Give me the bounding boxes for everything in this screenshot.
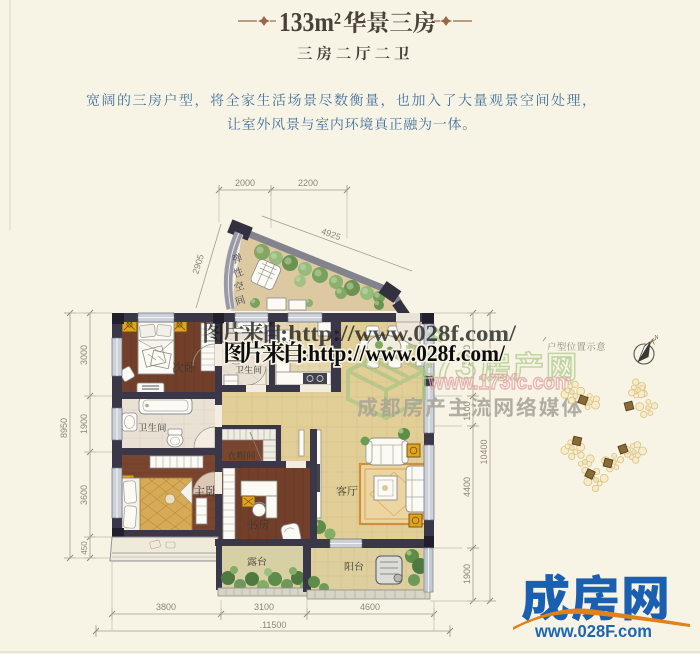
svg-text:10400: 10400 <box>479 439 489 464</box>
svg-text:3800: 3800 <box>156 602 176 612</box>
svg-text:1900: 1900 <box>462 564 472 584</box>
svg-text:3000: 3000 <box>79 345 89 365</box>
svg-text:3100: 3100 <box>254 602 274 612</box>
svg-text:1900: 1900 <box>79 414 89 434</box>
svg-text:.11500: .11500 <box>260 620 287 630</box>
svg-text:N: N <box>655 335 659 341</box>
svg-text:4600: 4600 <box>360 602 380 612</box>
svg-text:www.173fc.com: www.173fc.com <box>428 370 572 394</box>
svg-text:8950: 8950 <box>59 418 69 438</box>
svg-text:2000: 2000 <box>235 178 255 188</box>
svg-text:450: 450 <box>80 541 89 555</box>
svg-text:1100: 1100 <box>462 401 472 420</box>
svg-text::http://www.028f.com/: :http://www.028f.com/ <box>301 341 505 367</box>
svg-text:2200: 2200 <box>298 178 318 188</box>
svg-text:3600: 3600 <box>79 485 89 505</box>
svg-text:www.028F.com: www.028F.com <box>534 621 652 641</box>
svg-text:4400: 4400 <box>462 477 472 497</box>
svg-text:133m²: 133m² <box>279 7 341 37</box>
